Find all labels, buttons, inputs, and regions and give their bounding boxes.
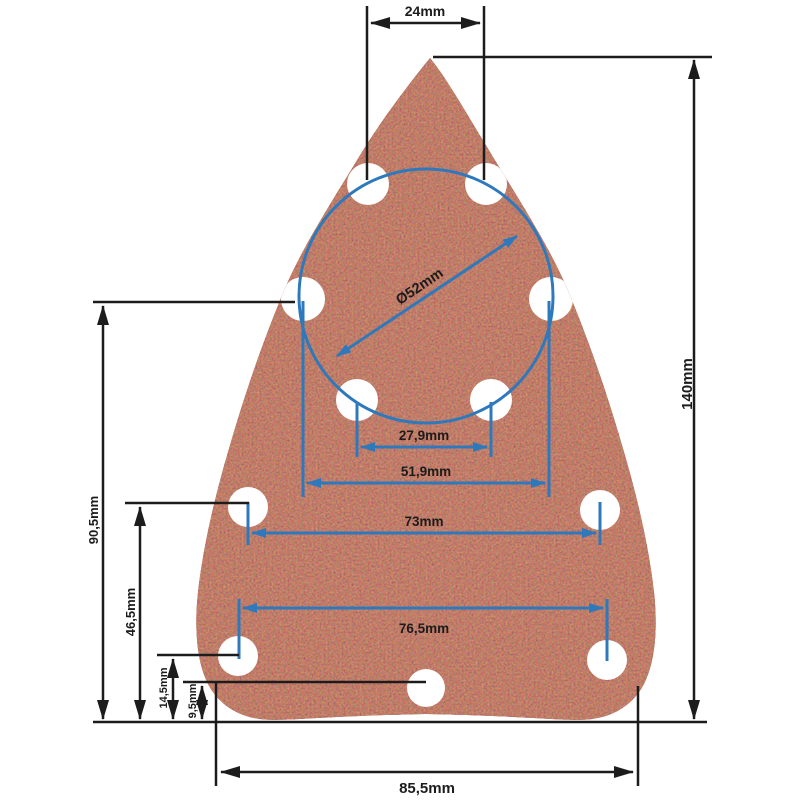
- dimension-label: 90,5mm: [86, 496, 101, 544]
- dimension-label: 46,5mm: [123, 588, 138, 636]
- dimension-label: 27,9mm: [399, 428, 449, 443]
- dimension-label: 14,5mm: [158, 667, 170, 708]
- sanding-sheet-dimension-diagram: Ø52mm 24mm 140mm 27,9mm 51,9mm 73mm: [0, 0, 800, 800]
- dimension-label: 24mm: [405, 3, 445, 19]
- dimension-label: 76,5mm: [399, 621, 449, 636]
- dimension-label: 73mm: [404, 514, 443, 529]
- dimension-label: 51,9mm: [401, 464, 451, 479]
- sanding-hole-bottom-center: [407, 669, 445, 707]
- dimension-label: 85,5mm: [399, 780, 455, 797]
- diagram-canvas: Ø52mm 24mm 140mm 27,9mm 51,9mm 73mm: [0, 0, 800, 800]
- dimension-label: 9,5mm: [187, 683, 199, 718]
- dimension-label: 140mm: [679, 358, 696, 410]
